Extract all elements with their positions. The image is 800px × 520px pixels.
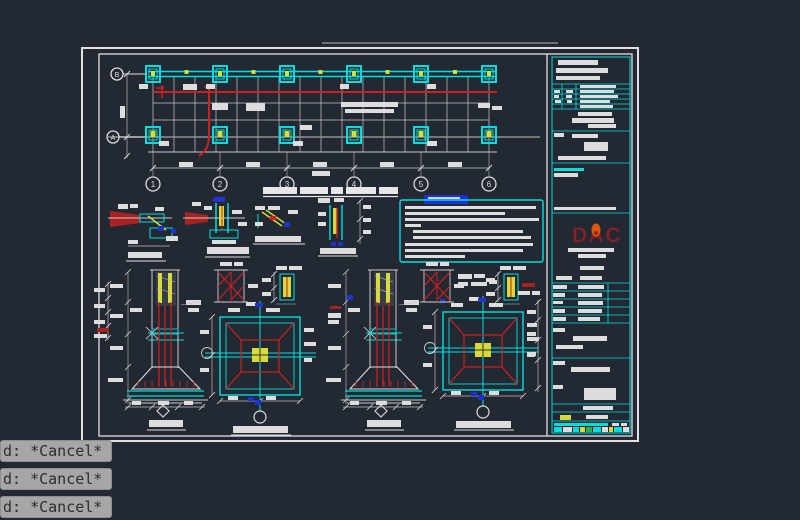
footing-section-2 [326,269,426,430]
footing-plan-2 [423,296,539,430]
column-stub-detail-2 [486,266,526,304]
title-block: DAC [552,57,630,433]
plan-title [263,187,398,197]
svg-text:2: 2 [218,180,223,189]
truss-detail-2 [420,262,464,302]
grid-verticals [153,77,489,152]
beam-detail-4 [318,198,371,256]
footing-plan [200,301,316,435]
beam-detail-2 [183,197,250,257]
command-history-entry: d: *Cancel* [0,496,112,518]
svg-text:5: 5 [419,180,424,189]
command-history-entry: d: *Cancel* [0,468,112,490]
left-axis [107,68,146,159]
cad-application-window: B A 1 2 3 4 5 6 [0,0,800,520]
titleblock-color-strip [554,427,629,432]
beam-detail-3 [253,206,305,244]
foundation-plan: B A 1 2 3 4 5 6 [107,66,540,197]
left-dim-chain [94,281,111,341]
column-stub-detail [262,266,302,304]
stub2-labels [458,274,497,286]
beam-detail-1 [108,204,178,261]
dac-logo: DAC [572,224,622,248]
footing-section [108,269,208,430]
notes-box [400,195,543,262]
notes-lines [405,206,539,258]
truss-detail [214,262,258,302]
cad-viewport[interactable]: B A 1 2 3 4 5 6 [0,0,800,520]
command-history-entry: d: *Cancel* [0,440,112,462]
section-cut-line [199,87,209,156]
svg-text:6: 6 [487,180,492,189]
titleblock-header-text [556,60,608,80]
svg-text:1: 1 [151,180,156,189]
axis-label-B: B [115,72,120,79]
axis-label-A: A [111,135,116,142]
